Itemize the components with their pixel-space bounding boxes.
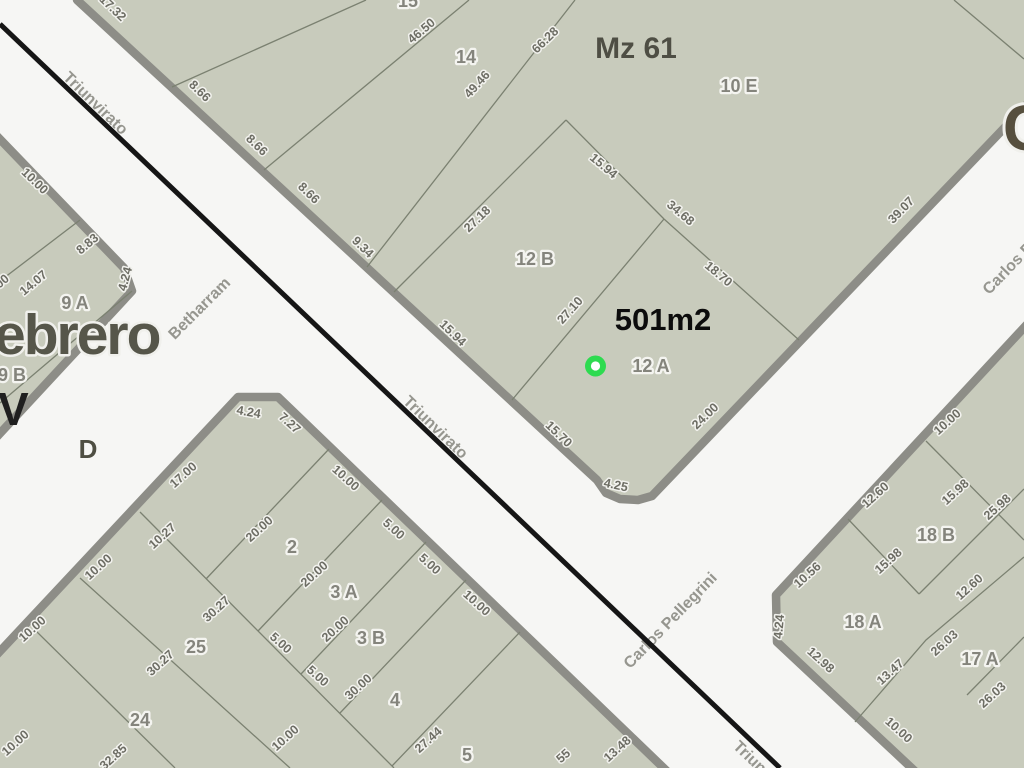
svg-text:12 B: 12 B (516, 249, 554, 269)
svg-text:3 A: 3 A (330, 582, 357, 602)
svg-text:501m2: 501m2 (615, 302, 712, 337)
svg-text:ebrero: ebrero (0, 303, 160, 367)
svg-text:14: 14 (456, 47, 476, 67)
svg-text:18 A: 18 A (844, 612, 881, 632)
svg-text:15: 15 (398, 0, 418, 11)
svg-text:10 E: 10 E (720, 76, 757, 96)
svg-text:4: 4 (390, 690, 400, 710)
svg-text:9 B: 9 B (0, 365, 26, 385)
svg-text:18 B: 18 B (917, 525, 955, 545)
svg-text:17 A: 17 A (961, 649, 998, 669)
svg-text:2: 2 (287, 537, 297, 557)
svg-text:3 B: 3 B (357, 628, 385, 648)
svg-text:V: V (0, 383, 29, 435)
svg-text:C: C (1003, 92, 1024, 164)
svg-text:5: 5 (462, 745, 472, 765)
svg-text:24: 24 (130, 710, 150, 730)
svg-text:25: 25 (186, 637, 206, 657)
svg-text:4.24: 4.24 (771, 614, 787, 640)
svg-text:D: D (79, 434, 98, 464)
svg-text:12 A: 12 A (632, 356, 669, 376)
svg-text:Mz 61: Mz 61 (595, 32, 677, 65)
